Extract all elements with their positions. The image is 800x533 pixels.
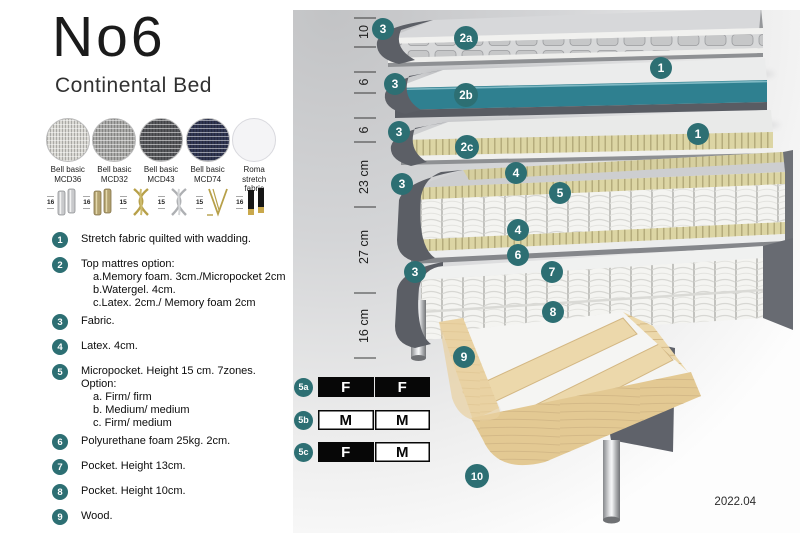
leg-icon-cylinder-brass (92, 186, 114, 218)
legend-subtext: a.Memory foam. 3cm./Micropocket 2cm (81, 271, 286, 284)
badge-2c: 2c (455, 135, 479, 159)
svg-text:10: 10 (471, 471, 483, 483)
page-title: No6 (52, 4, 166, 70)
legend-item-2: 2 Top mattres option: a.Memory foam. 3cm… (52, 258, 290, 310)
legend-text: Stretch fabric quilted with wadding. (81, 233, 251, 246)
firmness-row-5c: 5c F M (294, 442, 430, 462)
fabric-code: MCD32 (101, 175, 128, 184)
fabric-swatch-mcd74: Bell basic MCD74 (185, 118, 231, 194)
legend-badge-6: 6 (52, 434, 68, 450)
leg-option-block-black-gold: 16 (236, 186, 267, 218)
version-label: 2022.04 (714, 496, 756, 508)
legend-text: Top mattres option: (81, 258, 286, 271)
badge-5-micropocket: 5 (549, 182, 571, 204)
legend-badge-1: 1 (52, 232, 68, 248)
legend-subtext: a. Firm/ firm (81, 391, 290, 404)
badge-3-mattress27: 3 (404, 261, 426, 283)
leg-height: 15 (158, 199, 165, 206)
badge-8-pocket10: 8 (542, 301, 564, 323)
svg-text:3: 3 (399, 177, 406, 191)
svg-text:4: 4 (513, 166, 520, 180)
svg-text:3: 3 (412, 265, 419, 279)
legend-text: Pocket. Height 13cm. (81, 460, 186, 473)
badge-7-pocket13: 7 (541, 261, 563, 283)
measure-16cm: 16 cm (357, 309, 371, 343)
leg-icon-twisted-silver (167, 186, 191, 218)
badge-2b: 2b (454, 83, 478, 107)
legend-subtext: c. Firm/ medium (81, 417, 290, 430)
fabric-swatch-row: Bell basic MCD36 Bell basic MCD32 Bell b… (45, 118, 277, 194)
firmness-row-5b: 5b M M (294, 410, 430, 430)
leg-option-twisted-gold: 15 (119, 186, 152, 218)
bottom-metal-leg (603, 440, 620, 520)
firmness-cell: M (375, 442, 431, 462)
leg-height: 15 (196, 199, 203, 206)
measure-27cm: 27 cm (357, 230, 371, 264)
legend-badge-3: 3 (52, 314, 68, 330)
leg-icon-hairpin-gold (205, 186, 231, 218)
fabric-swatch-image (46, 118, 90, 162)
legend-item-4: 4 Latex. 4cm. (52, 340, 290, 355)
svg-text:2b: 2b (459, 90, 472, 102)
layer-2b-watergel (385, 58, 767, 118)
svg-text:6: 6 (515, 248, 522, 262)
legend-item-3: 3 Fabric. (52, 315, 290, 330)
svg-text:9: 9 (461, 350, 468, 364)
badge-2a: 2a (454, 26, 478, 50)
fabric-name: Bell basic (144, 165, 178, 174)
wood-base (439, 312, 703, 524)
leg-icon-cylinder-silver (56, 186, 78, 218)
legend-item-6: 6 Polyurethane foam 25kg. 2cm. (52, 435, 290, 450)
diagram-panel: 10 6 6 23 cm 27 cm 16 cm (293, 10, 800, 533)
firmness-badge-5b: 5b (294, 411, 313, 430)
leg-option-cylinder-silver: 16 (47, 186, 78, 218)
svg-text:2a: 2a (460, 33, 473, 45)
legend-item-1: 1 Stretch fabric quilted with wadding. (52, 233, 290, 248)
layer-2a-top-mattress (377, 10, 763, 67)
leg-options-row: 16 16 15 15 (47, 186, 267, 218)
legend-text: Pocket. Height 10cm. (81, 485, 186, 498)
fabric-swatch-mcd43: Bell basic MCD43 (138, 118, 184, 194)
fabric-swatch-roma: Roma stretch fabric (231, 118, 277, 194)
firmness-cell: M (318, 410, 374, 430)
svg-text:1: 1 (695, 127, 702, 141)
measure-23cm: 23 cm (357, 160, 371, 194)
badge-3-layer2b: 3 (384, 73, 406, 95)
leg-height: 16 (83, 199, 90, 206)
legend-subtext: b. Medium/ medium (81, 404, 290, 417)
leg-option-hairpin-gold: 15 (196, 186, 231, 218)
legend-text: Micropocket. Height 15 cm. 7zones. Optio… (81, 365, 290, 391)
leg-height: 15 (119, 199, 126, 206)
badge-9-wood: 9 (453, 346, 475, 368)
fabric-name: Bell basic (51, 165, 85, 174)
firmness-cell: F (375, 377, 431, 397)
fabric-swatch-mcd32: Bell basic MCD32 (92, 118, 138, 194)
leg-icon-block-black-gold (245, 186, 267, 218)
badge-3-layer2a: 3 (372, 18, 394, 40)
svg-text:5: 5 (557, 186, 564, 200)
fabric-swatch-image (92, 118, 136, 162)
badge-4-bottom-latex: 4 (507, 219, 529, 241)
fabric-name: Bell basic (190, 165, 224, 174)
badge-1-upper: 1 (650, 57, 672, 79)
fabric-name: Bell basic (97, 165, 131, 174)
legend-badge-5: 5 (52, 364, 68, 380)
badge-4-top-latex: 4 (505, 162, 527, 184)
legend-item-9: 9 Wood. (52, 510, 290, 525)
svg-text:4: 4 (515, 223, 522, 237)
firmness-badge-5c: 5c (294, 443, 313, 462)
fabric-code: MCD43 (147, 175, 174, 184)
legend-badge-4: 4 (52, 339, 68, 355)
badge-6-foam: 6 (507, 244, 529, 266)
svg-text:3: 3 (396, 125, 403, 139)
infographic-page: No6 Continental Bed Bell basic MCD36 Bel… (0, 0, 800, 533)
legend-text: Latex. 4cm. (81, 340, 138, 353)
measure-6a: 6 (357, 78, 371, 85)
legend-subtext: c.Latex. 2cm./ Memory foam 2cm (81, 297, 286, 310)
measure-10: 10 (357, 25, 371, 39)
legend-text: Polyurethane foam 25kg. 2cm. (81, 435, 230, 448)
badge-3-mattress23: 3 (391, 173, 413, 195)
legend-badge-8: 8 (52, 484, 68, 500)
svg-text:8: 8 (550, 305, 557, 319)
mattress-23cm (397, 150, 793, 264)
fabric-code: MCD74 (194, 175, 221, 184)
leg-height: 16 (236, 199, 243, 206)
fabric-swatch-mcd36: Bell basic MCD36 (45, 118, 91, 194)
firmness-cell: F (318, 442, 374, 462)
svg-text:3: 3 (380, 22, 387, 36)
legend-item-8: 8 Pocket. Height 10cm. (52, 485, 290, 500)
fabric-swatch-image (139, 118, 183, 162)
legend-subtext: b.Watergel. 4cm. (81, 284, 286, 297)
legend-text: Fabric. (81, 315, 115, 328)
measure-6b: 6 (357, 126, 371, 133)
leg-icon-twisted-gold (129, 186, 153, 218)
legend-list: 1 Stretch fabric quilted with wadding. 2… (52, 233, 290, 533)
firmness-badge-5a: 5a (294, 378, 313, 397)
svg-text:7: 7 (549, 265, 556, 279)
fabric-name: Roma (244, 165, 265, 174)
firmness-cell: F (318, 377, 374, 397)
legend-text: Wood. (81, 510, 113, 523)
fabric-swatch-image (186, 118, 230, 162)
legend-badge-2: 2 (52, 257, 68, 273)
badge-3-layer2c: 3 (388, 121, 410, 143)
legend-badge-9: 9 (52, 509, 68, 525)
legend-item-7: 7 Pocket. Height 13cm. (52, 460, 290, 475)
fabric-swatch-image (232, 118, 276, 162)
svg-text:1: 1 (658, 61, 665, 75)
firmness-row-5a: 5a F F (294, 377, 430, 397)
leg-option-cylinder-brass: 16 (83, 186, 114, 218)
legend-badge-7: 7 (52, 459, 68, 475)
firmness-cell: M (375, 410, 431, 430)
measurement-column: 10 6 6 23 cm 27 cm 16 cm (354, 18, 376, 358)
legend-item-5: 5 Micropocket. Height 15 cm. 7zones. Opt… (52, 365, 290, 430)
leg-option-twisted-silver: 15 (158, 186, 191, 218)
badge-1-lower: 1 (687, 123, 709, 145)
page-subtitle: Continental Bed (55, 74, 212, 98)
leg-height: 16 (47, 199, 54, 206)
svg-text:2c: 2c (461, 142, 474, 154)
svg-text:3: 3 (392, 77, 399, 91)
fabric-code: MCD36 (54, 175, 81, 184)
badge-10-leg: 10 (465, 464, 489, 488)
